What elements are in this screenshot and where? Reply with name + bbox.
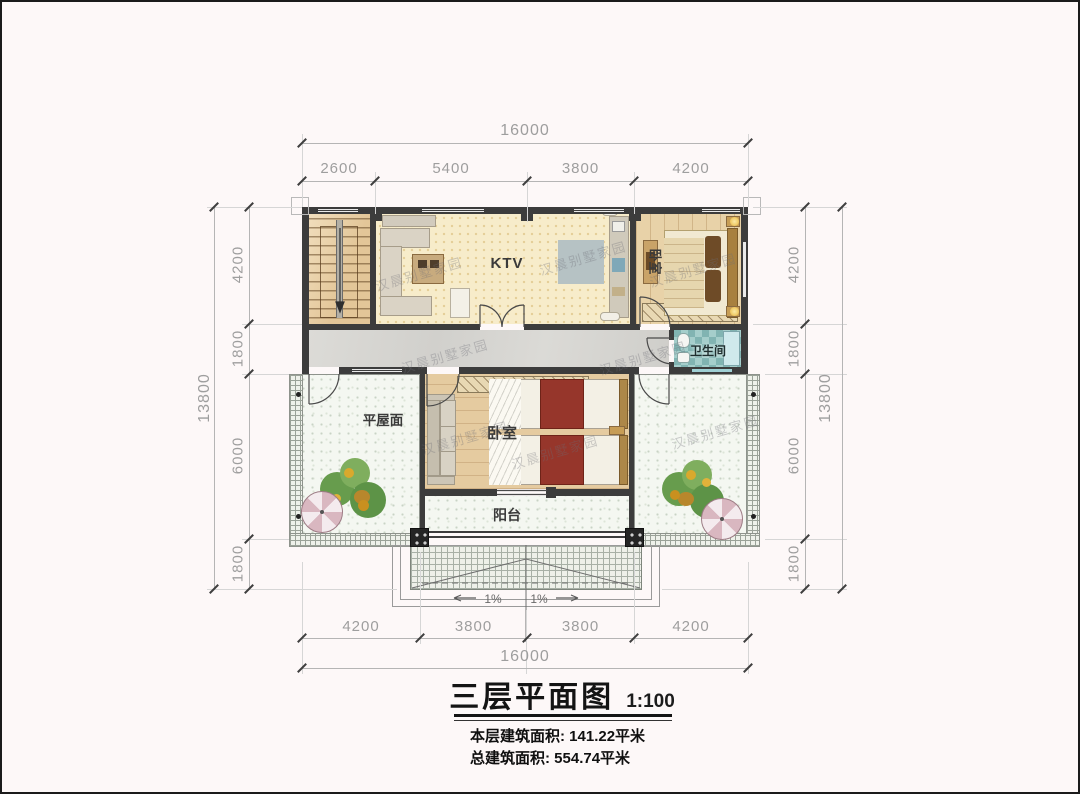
dim-left-overall: 13800	[196, 368, 214, 428]
page-title: 三层平面图	[449, 672, 614, 716]
dim-line-bottom-overall	[302, 668, 748, 669]
drawing-title-row: 三层平面图 1:100	[442, 672, 682, 716]
floor-area-text: 本层建筑面积: 141.22平米	[470, 726, 645, 748]
title-underline-thin	[454, 720, 672, 721]
dim-top-seg-1: 2600	[303, 160, 375, 177]
drawing-scale: 1:100	[626, 691, 675, 713]
dim-right-seg-3: 6000	[786, 426, 803, 486]
dim-right-overall: 13800	[817, 368, 835, 428]
dim-right-seg-4: 1800	[786, 534, 803, 594]
slope-label-right: 1%	[526, 592, 552, 606]
dim-bottom-seg-2: 3800	[420, 618, 527, 635]
dim-line-top-overall	[302, 143, 748, 144]
dim-line-right-overall	[842, 207, 843, 589]
extension-line	[242, 324, 302, 325]
dim-line-left-segments	[249, 207, 250, 589]
dim-bottom-seg-1: 4200	[302, 618, 420, 635]
extension-line	[753, 207, 847, 208]
room-label-flat-roof: 平屋面	[352, 409, 414, 429]
dim-top-seg-2: 5400	[375, 160, 527, 177]
dim-line-left-overall	[214, 207, 215, 589]
room-label-balcony: 阳台	[482, 505, 532, 525]
extension-line	[207, 207, 302, 208]
extension-line	[662, 589, 847, 590]
dim-bottom-seg-4: 4200	[634, 618, 748, 635]
dim-bottom-overall: 16000	[302, 648, 748, 666]
dim-right-seg-2: 1800	[786, 319, 803, 379]
dim-left-seg-2: 1800	[230, 319, 247, 379]
dim-left-seg-1: 4200	[230, 235, 247, 295]
dim-left-seg-4: 1800	[230, 534, 247, 594]
extension-line	[748, 562, 749, 674]
dim-left-seg-3: 6000	[230, 426, 247, 486]
dim-top-seg-3: 3800	[527, 160, 634, 177]
dim-line-right-segments	[805, 207, 806, 589]
total-area-text: 总建筑面积: 554.74平米	[470, 748, 630, 770]
title-underline-thick	[454, 714, 672, 717]
floor-plan-sheet: KTV 卧室 卫生间 平屋面 卧室 阳台 1% 1% 汉晨别墅家园 汉晨别墅家园…	[0, 0, 1080, 794]
dim-bottom-seg-3: 3800	[527, 618, 634, 635]
slope-label-left: 1%	[480, 592, 506, 606]
dim-right-seg-1: 4200	[786, 235, 803, 295]
room-label-ktv: KTV	[482, 255, 532, 272]
dim-top-seg-4: 4200	[634, 160, 748, 177]
extension-line	[748, 134, 749, 207]
dim-top-overall: 16000	[302, 122, 748, 140]
